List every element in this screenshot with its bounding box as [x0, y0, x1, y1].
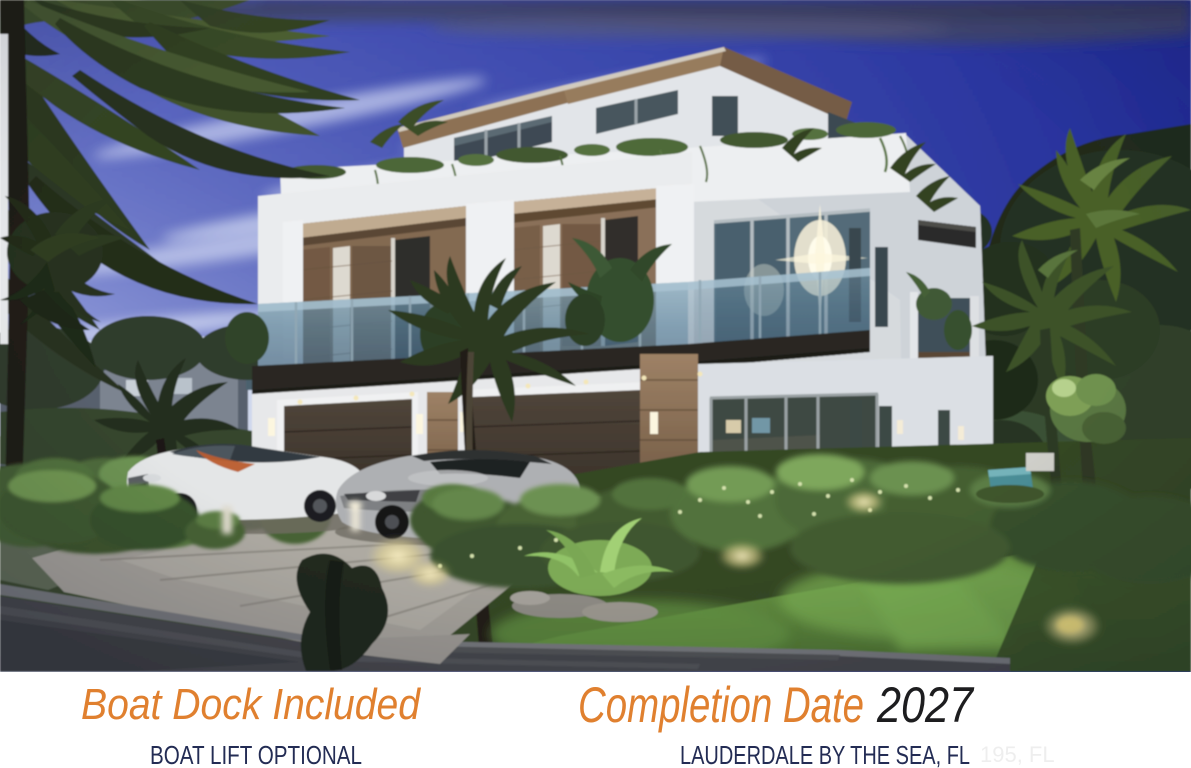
- svg-text:2027: 2027: [876, 677, 975, 733]
- svg-text:Boat Dock Included: Boat Dock Included: [81, 680, 421, 729]
- svg-text:BOAT LIFT OPTIONAL: BOAT LIFT OPTIONAL: [150, 740, 362, 768]
- svg-text:Completion Date: Completion Date: [578, 677, 864, 733]
- svg-text:LAUDERDALE BY THE SEA, FL: LAUDERDALE BY THE SEA, FL: [680, 740, 970, 768]
- svg-text:195, FL: 195, FL: [980, 742, 1055, 767]
